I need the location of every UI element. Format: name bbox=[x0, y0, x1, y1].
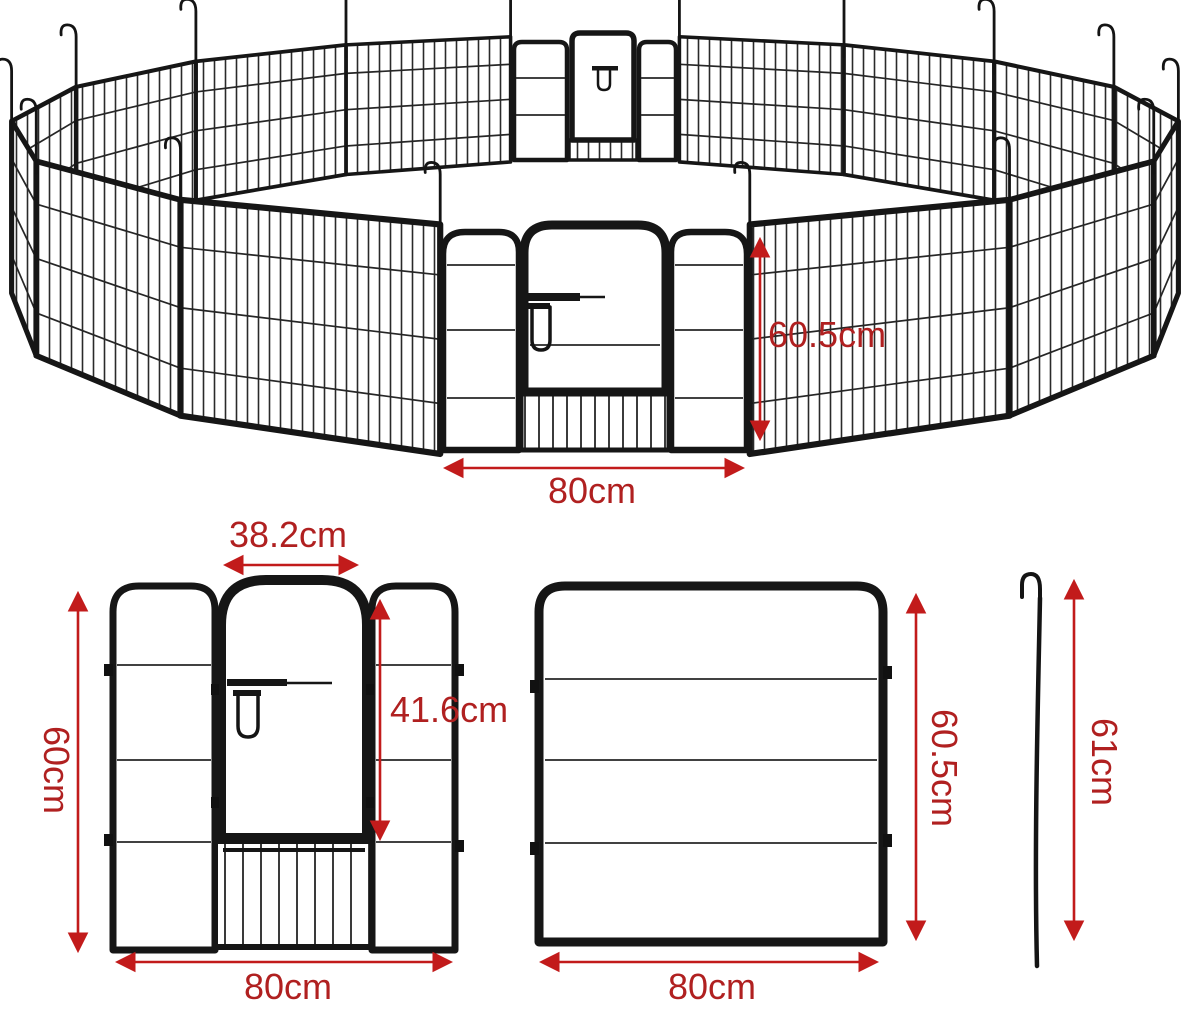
door-panel-width-label: 80cm bbox=[244, 966, 332, 1007]
pen-front-door-panel bbox=[443, 225, 747, 450]
door-width-label: 38.2cm bbox=[229, 514, 347, 555]
pen-panel bbox=[180, 200, 440, 454]
stake-height-label: 61cm bbox=[1084, 718, 1125, 806]
door-panel-latch-icon bbox=[227, 679, 332, 737]
back-right-section bbox=[639, 42, 676, 160]
pen-panel bbox=[346, 37, 511, 175]
door-panel-door bbox=[221, 580, 367, 838]
pen-panel bbox=[679, 37, 844, 175]
pen-panel bbox=[36, 161, 180, 415]
front-door-bottom-strip bbox=[521, 392, 669, 450]
stake-dimensions: 61cm bbox=[1074, 582, 1125, 938]
pen-height-label: 60.5cm bbox=[768, 314, 886, 355]
diagram-svg: 60.5cm 80cm bbox=[0, 0, 1200, 1015]
pen-panel bbox=[196, 45, 346, 200]
plain-panel-height-label: 60.5cm bbox=[924, 709, 965, 827]
connector-knob bbox=[883, 666, 892, 679]
ground-stake-icon bbox=[1036, 598, 1040, 966]
connector-knob bbox=[883, 834, 892, 847]
door-panel-right-section bbox=[372, 586, 455, 950]
door-panel-bottom-strip bbox=[215, 841, 372, 947]
plain-panel bbox=[539, 586, 883, 942]
connector-knob bbox=[455, 664, 464, 676]
pen-back-door-panel bbox=[514, 33, 676, 160]
hinge-knob bbox=[211, 797, 219, 808]
ground-stake-diagram: 61cm bbox=[1022, 574, 1125, 966]
pen-width-label: 80cm bbox=[548, 470, 636, 511]
connector-knob bbox=[530, 842, 539, 855]
connector-knob bbox=[455, 840, 464, 852]
hinge-knob bbox=[366, 684, 374, 695]
hinge-knob bbox=[211, 684, 219, 695]
door-panel-diagram: 38.2cm 60cm 41.6cm 80cm bbox=[36, 514, 508, 1007]
hinge-knob bbox=[366, 797, 374, 808]
back-door bbox=[572, 33, 634, 140]
back-door-latch-icon bbox=[592, 66, 618, 90]
door-panel-height-label: 60cm bbox=[36, 726, 77, 814]
connector-knob bbox=[530, 680, 539, 693]
playpen-dimensions-diagram: 60.5cm 80cm bbox=[0, 0, 1200, 1015]
door-panel-left-section bbox=[113, 586, 215, 950]
pen-panel bbox=[844, 45, 994, 200]
back-left-section bbox=[514, 42, 567, 160]
stake-hook-icon bbox=[1022, 574, 1040, 604]
pen-panel bbox=[1010, 161, 1154, 415]
plain-panel-diagram: 60.5cm 80cm bbox=[530, 586, 965, 1007]
plain-panel-width-label: 80cm bbox=[668, 966, 756, 1007]
connector-knob bbox=[104, 834, 113, 846]
pen-panel bbox=[1154, 121, 1179, 356]
back-door-bottom-strip bbox=[569, 140, 637, 160]
assembled-pen-diagram: 60.5cm 80cm bbox=[0, 0, 1178, 511]
connector-knob bbox=[104, 664, 113, 676]
pen-panel bbox=[12, 121, 37, 356]
front-door-latch-icon bbox=[518, 293, 605, 350]
door-height-label: 41.6cm bbox=[390, 689, 508, 730]
